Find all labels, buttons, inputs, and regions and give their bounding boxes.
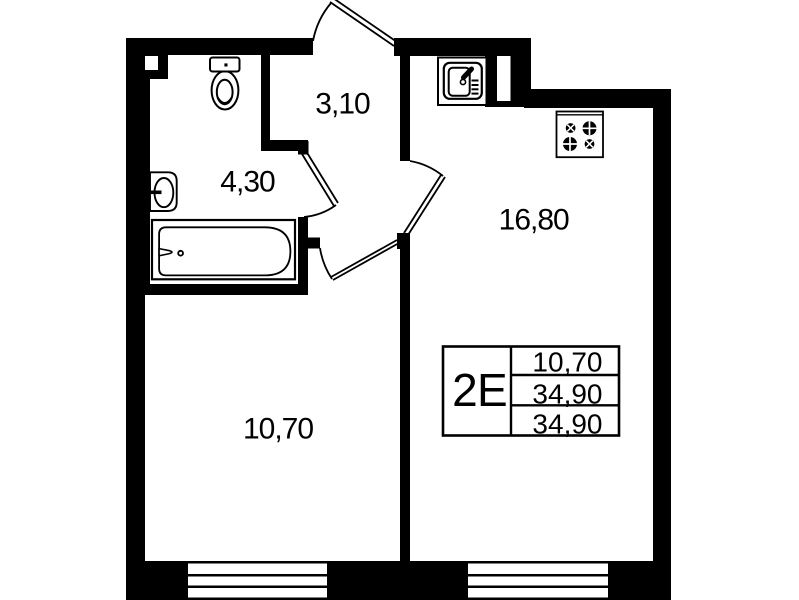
svg-text:16,80: 16,80 — [499, 204, 569, 237]
svg-text:2Е: 2Е — [452, 364, 507, 416]
svg-text:4,30: 4,30 — [220, 166, 275, 199]
svg-text:34,90: 34,90 — [532, 409, 602, 440]
svg-text:34,90: 34,90 — [532, 379, 602, 410]
svg-text:10,70: 10,70 — [243, 413, 313, 446]
svg-text:3,10: 3,10 — [315, 88, 370, 121]
svg-text:10,70: 10,70 — [532, 347, 602, 378]
